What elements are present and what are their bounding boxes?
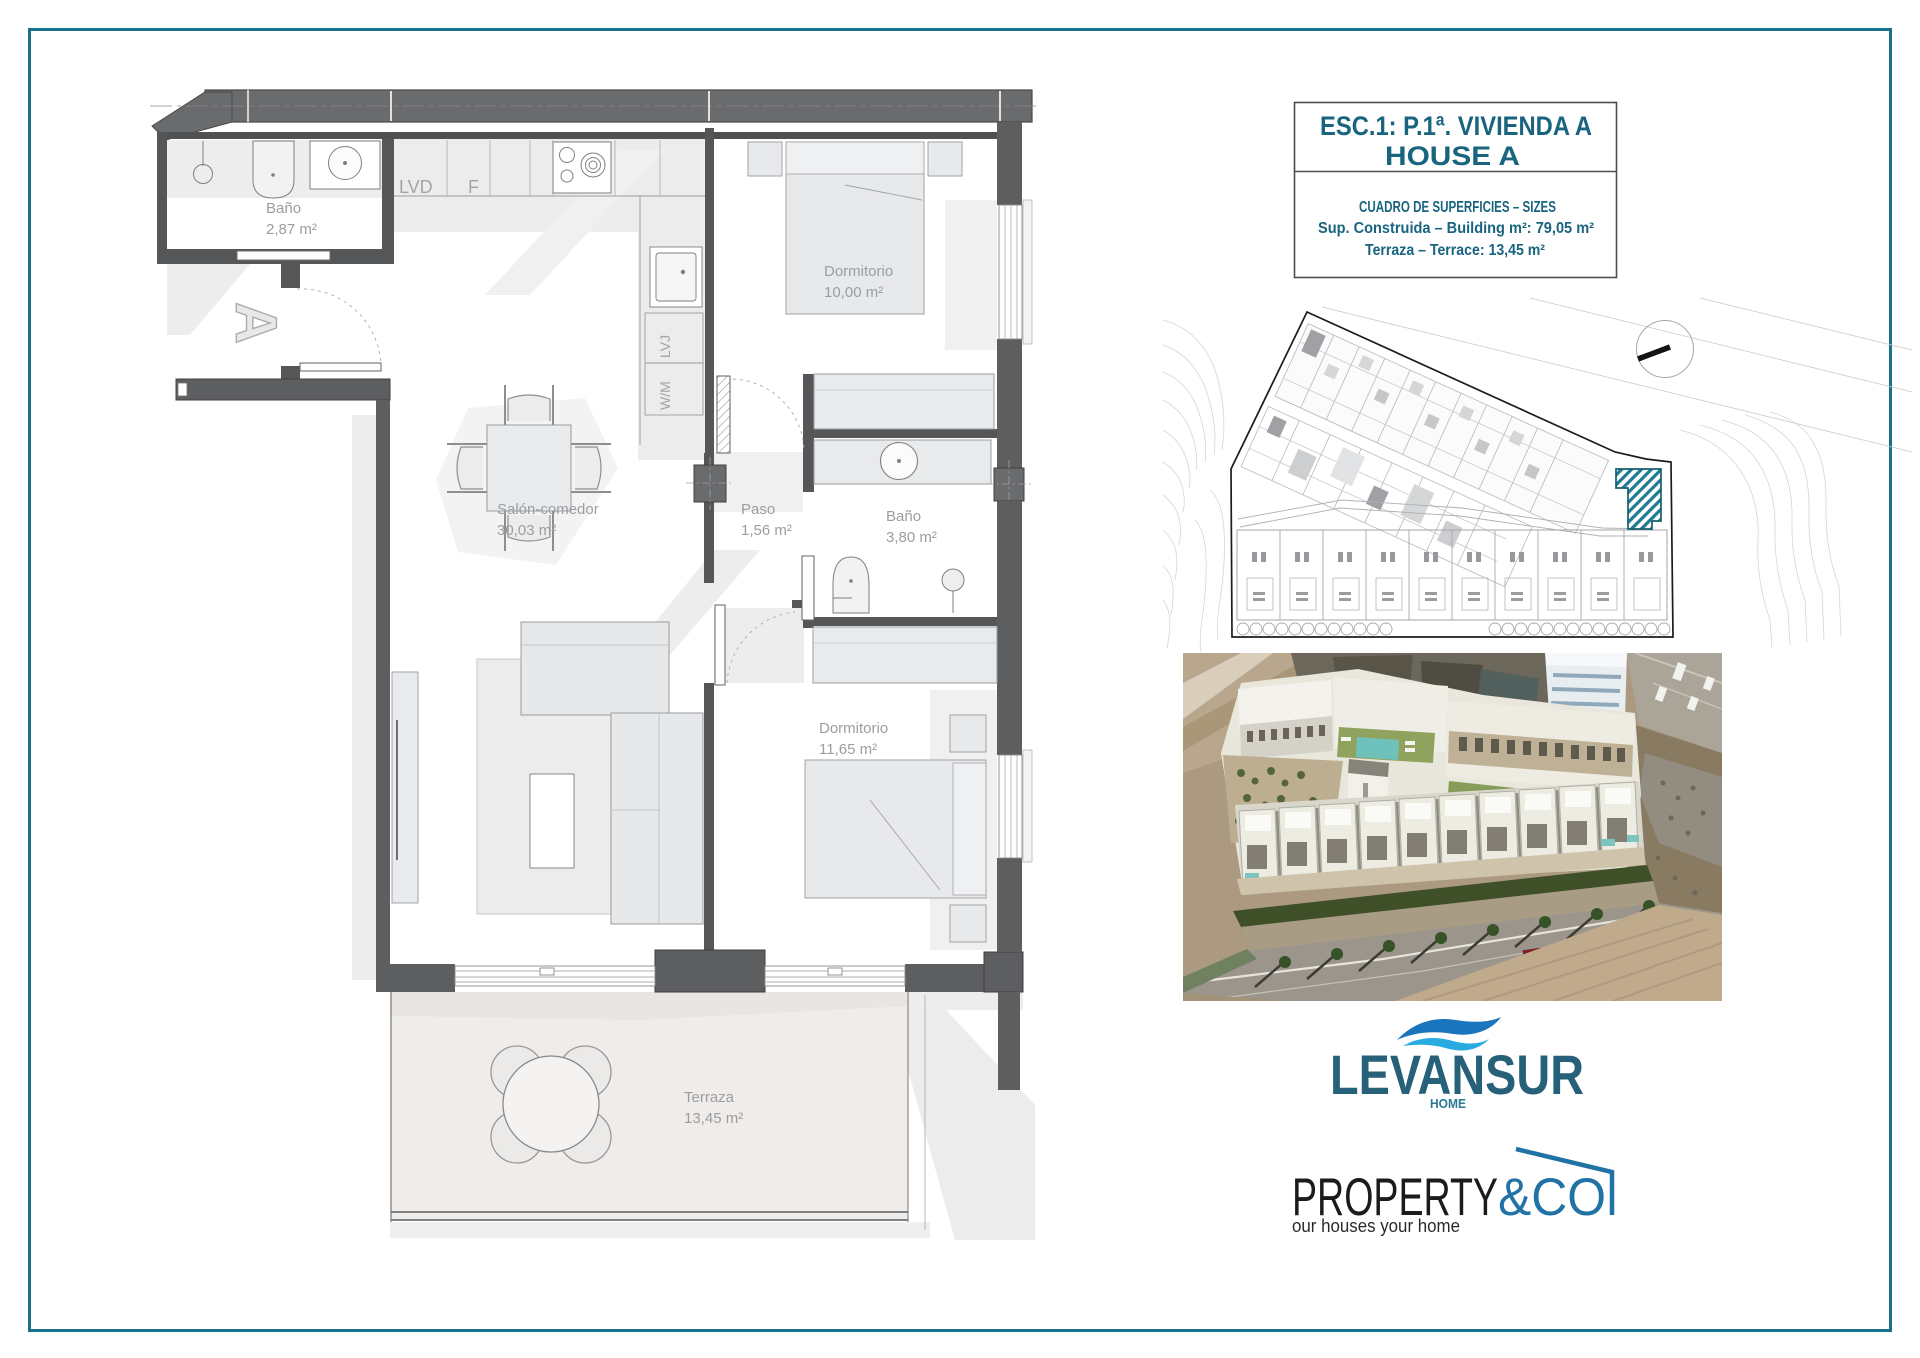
svg-text:&CO: &CO: [1498, 1168, 1606, 1227]
svg-text:our houses your home: our houses your home: [1292, 1216, 1460, 1236]
svg-text:W/M: W/M: [657, 381, 673, 410]
svg-text:2,87 m²: 2,87 m²: [266, 221, 317, 238]
svg-text:LVJ: LVJ: [657, 335, 673, 358]
svg-text:ESC.1: P.1ª. VIVIENDA A: ESC.1: P.1ª. VIVIENDA A: [1320, 111, 1592, 141]
svg-text:Paso: Paso: [741, 501, 775, 518]
svg-text:HOUSE A: HOUSE A: [1385, 141, 1520, 171]
svg-text:30,03 m²: 30,03 m²: [497, 522, 556, 539]
svg-text:Dormitorio: Dormitorio: [819, 720, 888, 737]
svg-text:A: A: [223, 302, 288, 344]
svg-text:CUADRO DE SUPERFICIES – SIZES: CUADRO DE SUPERFICIES – SIZES: [1359, 199, 1556, 216]
svg-text:3,80 m²: 3,80 m²: [886, 529, 937, 546]
svg-text:LVD: LVD: [399, 177, 433, 197]
svg-text:1,56 m²: 1,56 m²: [741, 522, 792, 539]
svg-text:Salón-comedor: Salón-comedor: [497, 501, 599, 518]
svg-text:Baño: Baño: [266, 200, 301, 217]
svg-text:Dormitorio: Dormitorio: [824, 263, 893, 280]
svg-text:Sup. Construida – Building m²:: Sup. Construida – Building m²: 79,05 m²: [1318, 220, 1594, 237]
svg-text:10,00 m²: 10,00 m²: [824, 284, 883, 301]
svg-text:11,65 m²: 11,65 m²: [819, 741, 877, 758]
svg-text:Terraza – Terrace: 13,45 m²: Terraza – Terrace: 13,45 m²: [1365, 242, 1545, 259]
svg-text:F: F: [468, 177, 479, 197]
svg-text:13,45 m²: 13,45 m²: [684, 1110, 743, 1127]
svg-text:HOME: HOME: [1430, 1096, 1466, 1111]
svg-text:Baño: Baño: [886, 508, 921, 525]
svg-text:Terraza: Terraza: [684, 1089, 735, 1106]
